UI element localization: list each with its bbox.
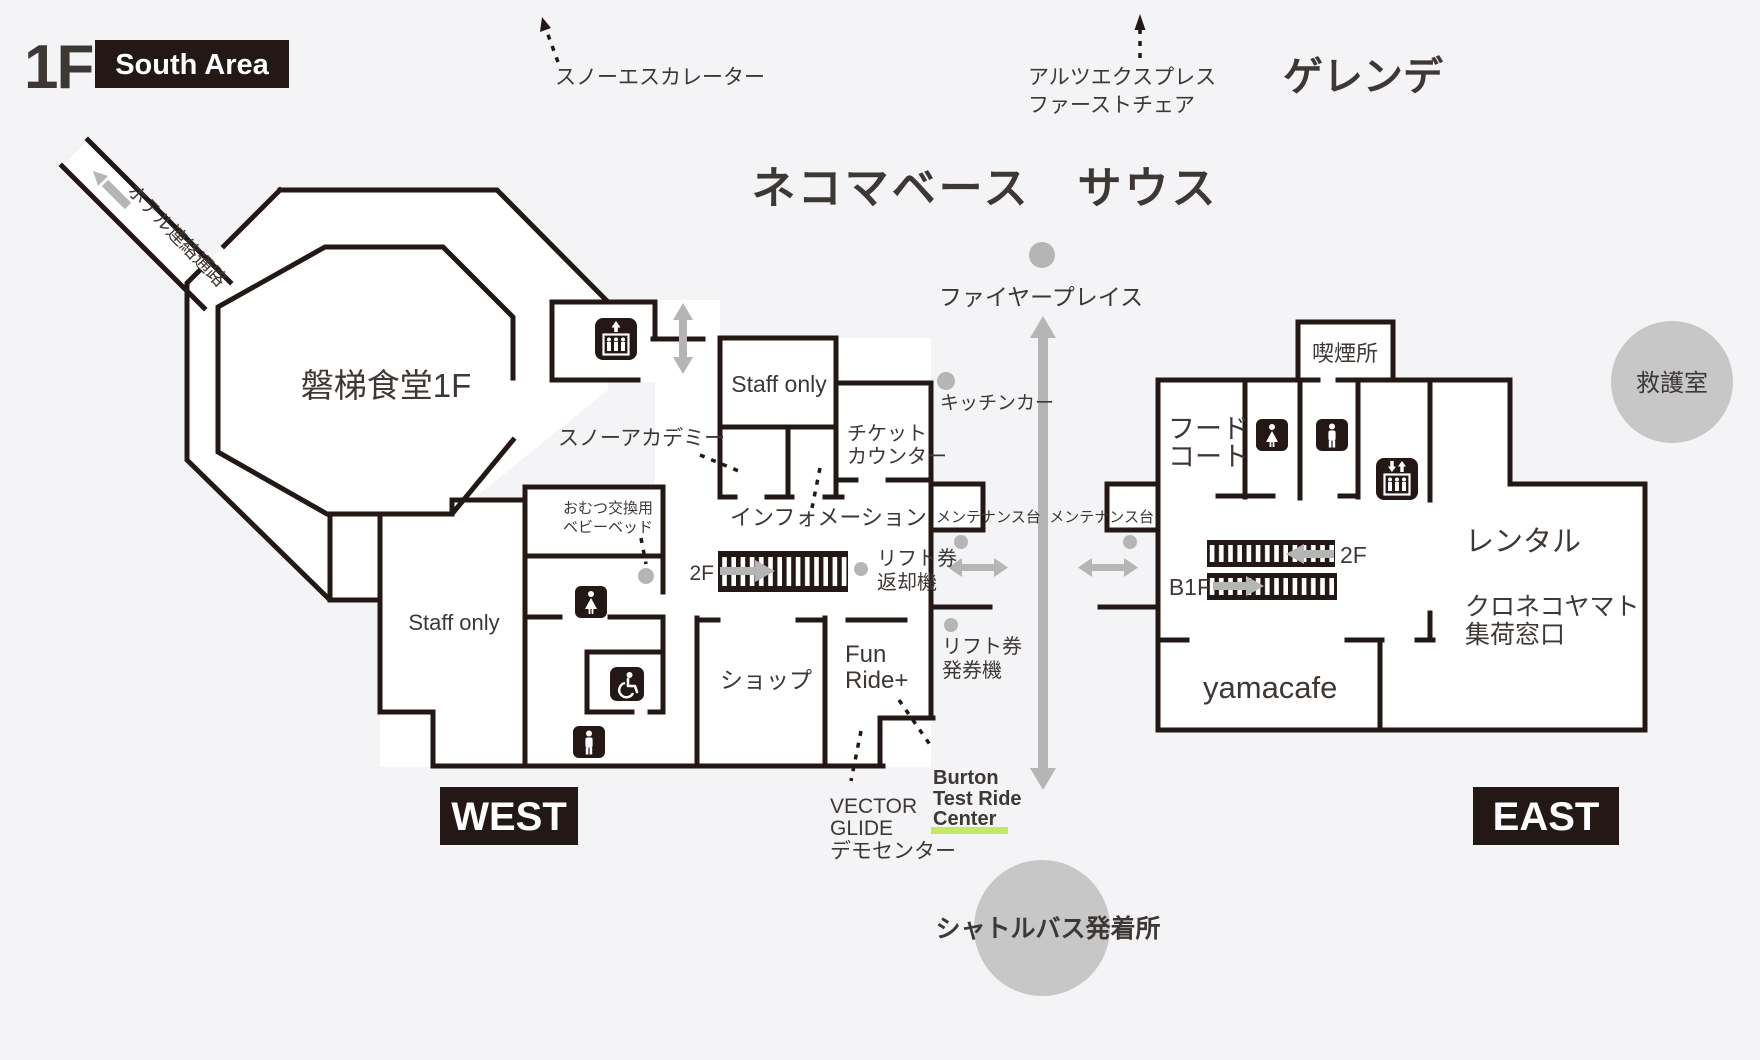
fireplace-dot (1029, 242, 1055, 268)
area-badge: South Area (95, 40, 289, 88)
female-restroom-east-icon (1256, 419, 1288, 451)
lift-issue-label-line1: リフト券 (942, 635, 1022, 658)
wheelchair-restroom-icon (610, 667, 644, 701)
food-court-label-line1: フード (1168, 414, 1249, 444)
male-restroom-west-icon (573, 726, 605, 758)
restaurant-label: 磐梯食堂1F (301, 367, 472, 404)
staff-only-upper-label: Staff only (731, 371, 827, 397)
food-court-label-line2: コート (1168, 442, 1249, 472)
fun-ride-label-line2: Ride+ (845, 667, 908, 694)
lift-return-label-line1: リフト券 (877, 547, 957, 570)
burton-label-line3: Center (933, 808, 997, 830)
male-restroom-east-icon (1316, 419, 1348, 451)
diaper-dot (638, 568, 654, 584)
lift-return-label-line2: 返却機 (877, 571, 937, 594)
kitchen-car-dot (937, 372, 955, 390)
first-aid-label: 救護室 (1636, 370, 1708, 397)
smoking-room-label: 喫煙所 (1312, 341, 1378, 366)
east-stairs-b1f (1207, 573, 1337, 600)
west-stairs-2f-label: 2F (689, 562, 714, 585)
vector-glide-label-line2: GLIDE (830, 817, 893, 840)
west-badge: WEST (440, 787, 578, 845)
west-stairs (718, 551, 848, 592)
ticket-counter-label-line2: カウンター (847, 445, 947, 468)
female-restroom-west-icon (575, 586, 607, 618)
yamacafe-label: yamacafe (1203, 670, 1337, 705)
vector-glide-label-line1: VECTOR (830, 795, 917, 818)
elevator-up-icon (595, 318, 637, 360)
west-badge-label: WEST (451, 795, 567, 839)
alts-express-label-line1: アルツエクスプレス (1028, 66, 1216, 89)
ticket-counter-label-line1: チケット (847, 423, 927, 445)
maintenance-west-label: メンテナンス台 (936, 509, 1041, 526)
east-entrance-arrow-icon (1078, 558, 1138, 577)
snow-escalator-label: スノーエスカレーター (555, 66, 765, 89)
kuroneko-label-line1: クロネコヤマト (1465, 593, 1640, 621)
staff-only-lower-label: Staff only (408, 610, 499, 635)
information-label: インフォメーション (730, 505, 927, 530)
elevator-updown-icon (1376, 458, 1418, 500)
east-badge: EAST (1473, 787, 1619, 845)
alts-express-label-line2: ファーストチェア (1028, 94, 1195, 117)
east-stairs-2f-label: 2F (1340, 542, 1367, 568)
diaper-label-line2: ベビーベッド (563, 519, 653, 536)
shop-label: ショップ (720, 667, 812, 693)
vector-glide-label-line3: デモセンター (830, 840, 956, 863)
burton-label-line2: Test Ride (933, 788, 1022, 810)
maintenance-west-dot (954, 535, 968, 549)
shuttle-bus-label: シャトルバス発着所 (935, 914, 1160, 943)
snow-escalator-arrowhead-icon (540, 17, 551, 32)
center-corridor-arrow (1030, 316, 1056, 790)
burton-label-line1: Burton (933, 767, 999, 789)
area-badge-label: South Area (115, 49, 269, 81)
hotel-corridor (62, 140, 230, 308)
page-title: ネコマベース サウス (752, 164, 1219, 213)
lift-return-dot (854, 562, 868, 576)
alts-express-arrowhead-icon (1135, 14, 1146, 30)
maintenance-east-label: メンテナンス台 (1049, 509, 1154, 526)
fun-ride-label-line1: Fun (845, 641, 886, 668)
east-stairs-b1f-label: B1F (1169, 574, 1211, 600)
kitchen-car-label: キッチンカー (940, 393, 1054, 414)
fireplace-label: ファイヤープレイス (939, 284, 1143, 310)
lift-issue-label-line2: 発券機 (942, 659, 1002, 682)
diaper-label-line1: おむつ交換用 (563, 499, 653, 517)
floor-label: 1F (24, 33, 92, 102)
slope-label: ゲレンデ (1283, 54, 1443, 99)
west-entrance-arrow-icon (948, 558, 1008, 577)
rental-label: レンタル (1465, 526, 1581, 558)
east-stairs-2f (1207, 540, 1335, 567)
snow-academy-label: スノーアカデミー (558, 427, 725, 450)
east-badge-label: EAST (1493, 795, 1600, 839)
floor-plan-svg: 1F South Area ネコマベース サウス ゲレンデ WEST EAST … (0, 0, 1760, 1060)
lift-issue-dot (944, 618, 958, 632)
kuroneko-label-line2: 集荷窓口 (1465, 621, 1565, 649)
maintenance-east-dot (1123, 535, 1137, 549)
